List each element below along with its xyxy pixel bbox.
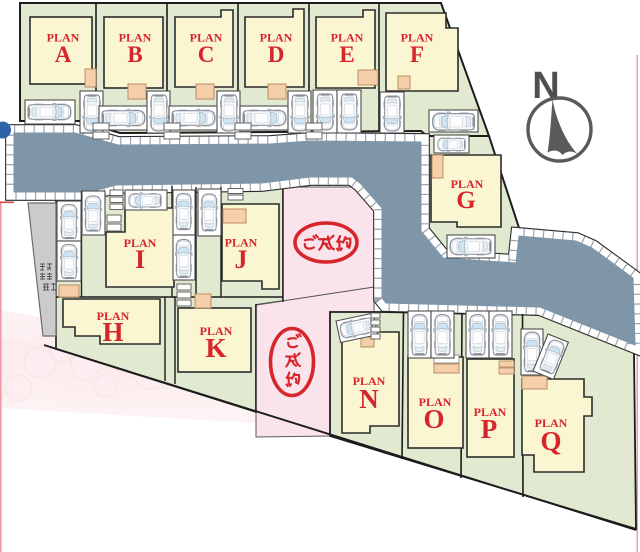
- svg-text:G: G: [456, 187, 475, 214]
- svg-text:H: H: [102, 317, 123, 347]
- svg-text:C: C: [198, 42, 215, 67]
- svg-text:Q: Q: [540, 426, 561, 456]
- svg-text:J: J: [235, 245, 248, 274]
- svg-text:E: E: [339, 42, 354, 67]
- svg-text:A: A: [55, 42, 72, 67]
- svg-text:O: O: [423, 404, 444, 434]
- svg-text:N: N: [359, 384, 379, 414]
- svg-text:D: D: [268, 42, 285, 67]
- svg-text:F: F: [410, 42, 424, 67]
- svg-text:I: I: [135, 245, 145, 274]
- svg-text:B: B: [127, 42, 142, 67]
- svg-text:P: P: [481, 414, 498, 444]
- svg-text:K: K: [205, 333, 226, 363]
